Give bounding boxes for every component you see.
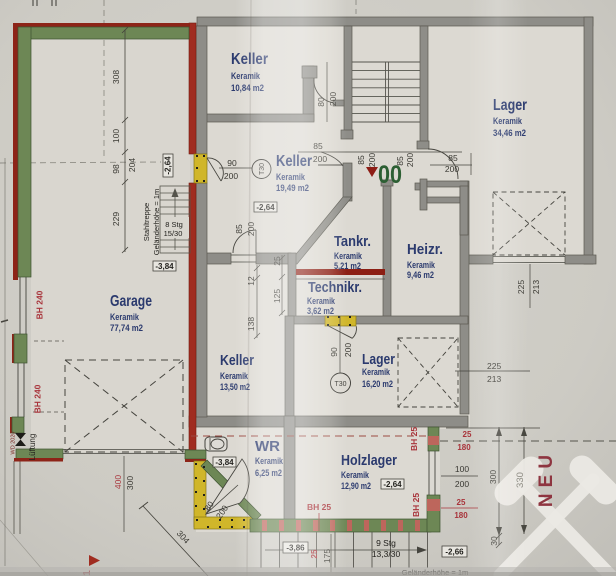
svg-text:15/30: 15/30 [164, 229, 183, 238]
svg-text:Heizr.: Heizr. [407, 241, 443, 258]
svg-text:204: 204 [127, 158, 137, 172]
svg-text:Geländerhöhe = 1m: Geländerhöhe = 1m [152, 189, 161, 256]
svg-text:Stahltreppe: Stahltreppe [142, 203, 151, 241]
svg-text:Garage: Garage [110, 293, 152, 310]
svg-text:Lüftung: Lüftung [28, 434, 37, 461]
svg-text:Keramik: Keramik [362, 367, 391, 377]
svg-text:BH 240: BH 240 [35, 290, 45, 319]
svg-text:100: 100 [111, 129, 121, 143]
svg-text:100: 100 [455, 464, 469, 474]
svg-text:Keramik: Keramik [110, 312, 140, 323]
svg-text:BH 25: BH 25 [411, 493, 421, 517]
svg-text:Lager: Lager [362, 351, 395, 368]
svg-text:WD 2020: WD 2020 [11, 432, 17, 455]
svg-text:200: 200 [455, 479, 469, 489]
svg-text:16,20 m2: 16,20 m2 [362, 379, 393, 389]
svg-text:-2,64: -2,64 [383, 480, 402, 489]
svg-text:9 Stg: 9 Stg [376, 538, 396, 548]
svg-text:25: 25 [457, 498, 466, 507]
svg-text:13,3/30: 13,3/30 [372, 549, 401, 559]
svg-text:200: 200 [405, 153, 415, 167]
svg-text:BH 240: BH 240 [33, 384, 43, 413]
svg-text:-2,64: -2,64 [164, 156, 173, 175]
svg-text:300: 300 [125, 476, 135, 490]
svg-text:-3,84: -3,84 [155, 262, 174, 271]
svg-text:Holzlager: Holzlager [341, 452, 397, 469]
svg-text:85: 85 [356, 155, 366, 165]
svg-text:85: 85 [395, 156, 405, 166]
svg-text:NEU: NEU [536, 449, 557, 507]
svg-text:BH 25: BH 25 [409, 427, 419, 451]
svg-text:Keramik: Keramik [407, 260, 436, 270]
svg-text:8 Stg: 8 Stg [165, 220, 183, 229]
svg-text:200: 200 [367, 153, 377, 167]
svg-text:-3,84: -3,84 [215, 458, 234, 467]
svg-text:-2,66: -2,66 [445, 548, 464, 557]
svg-text:213: 213 [531, 280, 541, 294]
svg-text:229: 229 [111, 212, 121, 226]
svg-text:77,74 m2: 77,74 m2 [110, 323, 143, 334]
svg-text:180: 180 [454, 511, 468, 520]
svg-text:308: 308 [111, 70, 121, 84]
svg-text:9,46 m2: 9,46 m2 [407, 270, 434, 280]
svg-text:85: 85 [448, 153, 458, 163]
svg-text:200: 200 [445, 164, 459, 174]
svg-text:98: 98 [111, 164, 121, 174]
svg-text:400: 400 [113, 475, 123, 489]
